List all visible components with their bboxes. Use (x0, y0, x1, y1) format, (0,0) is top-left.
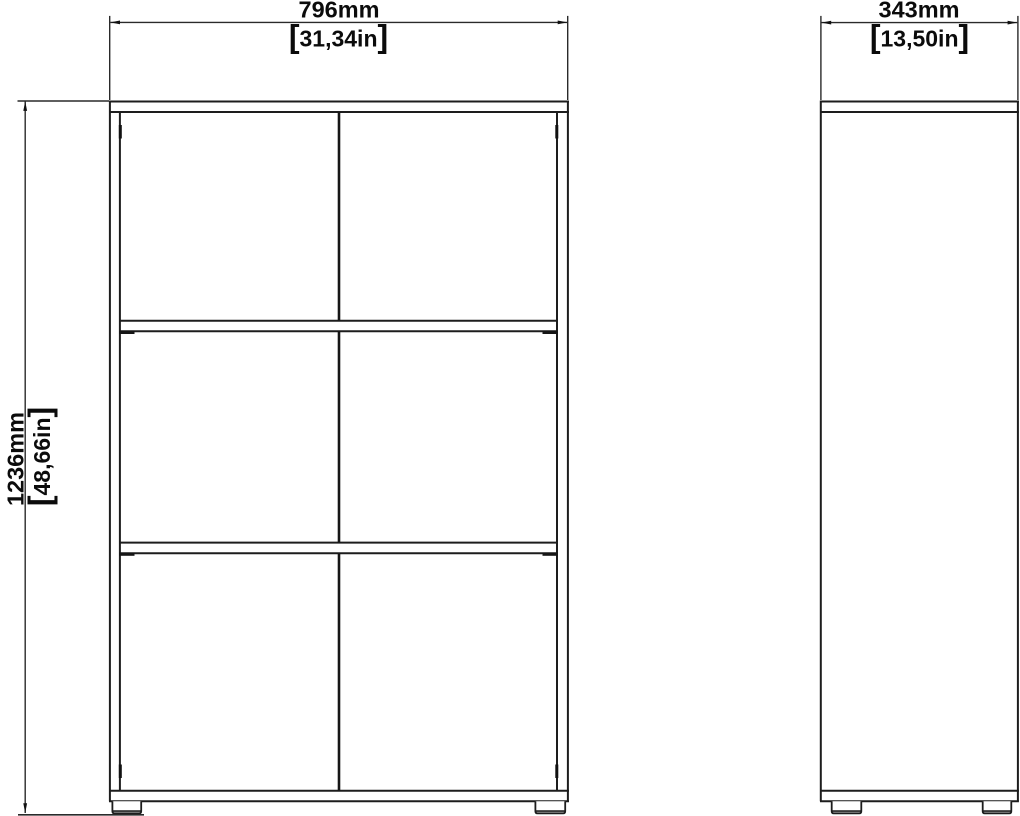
svg-text:1236mm: 1236mm (2, 412, 28, 506)
svg-text:796mm: 796mm (299, 0, 380, 23)
svg-text:343mm: 343mm (879, 0, 960, 23)
